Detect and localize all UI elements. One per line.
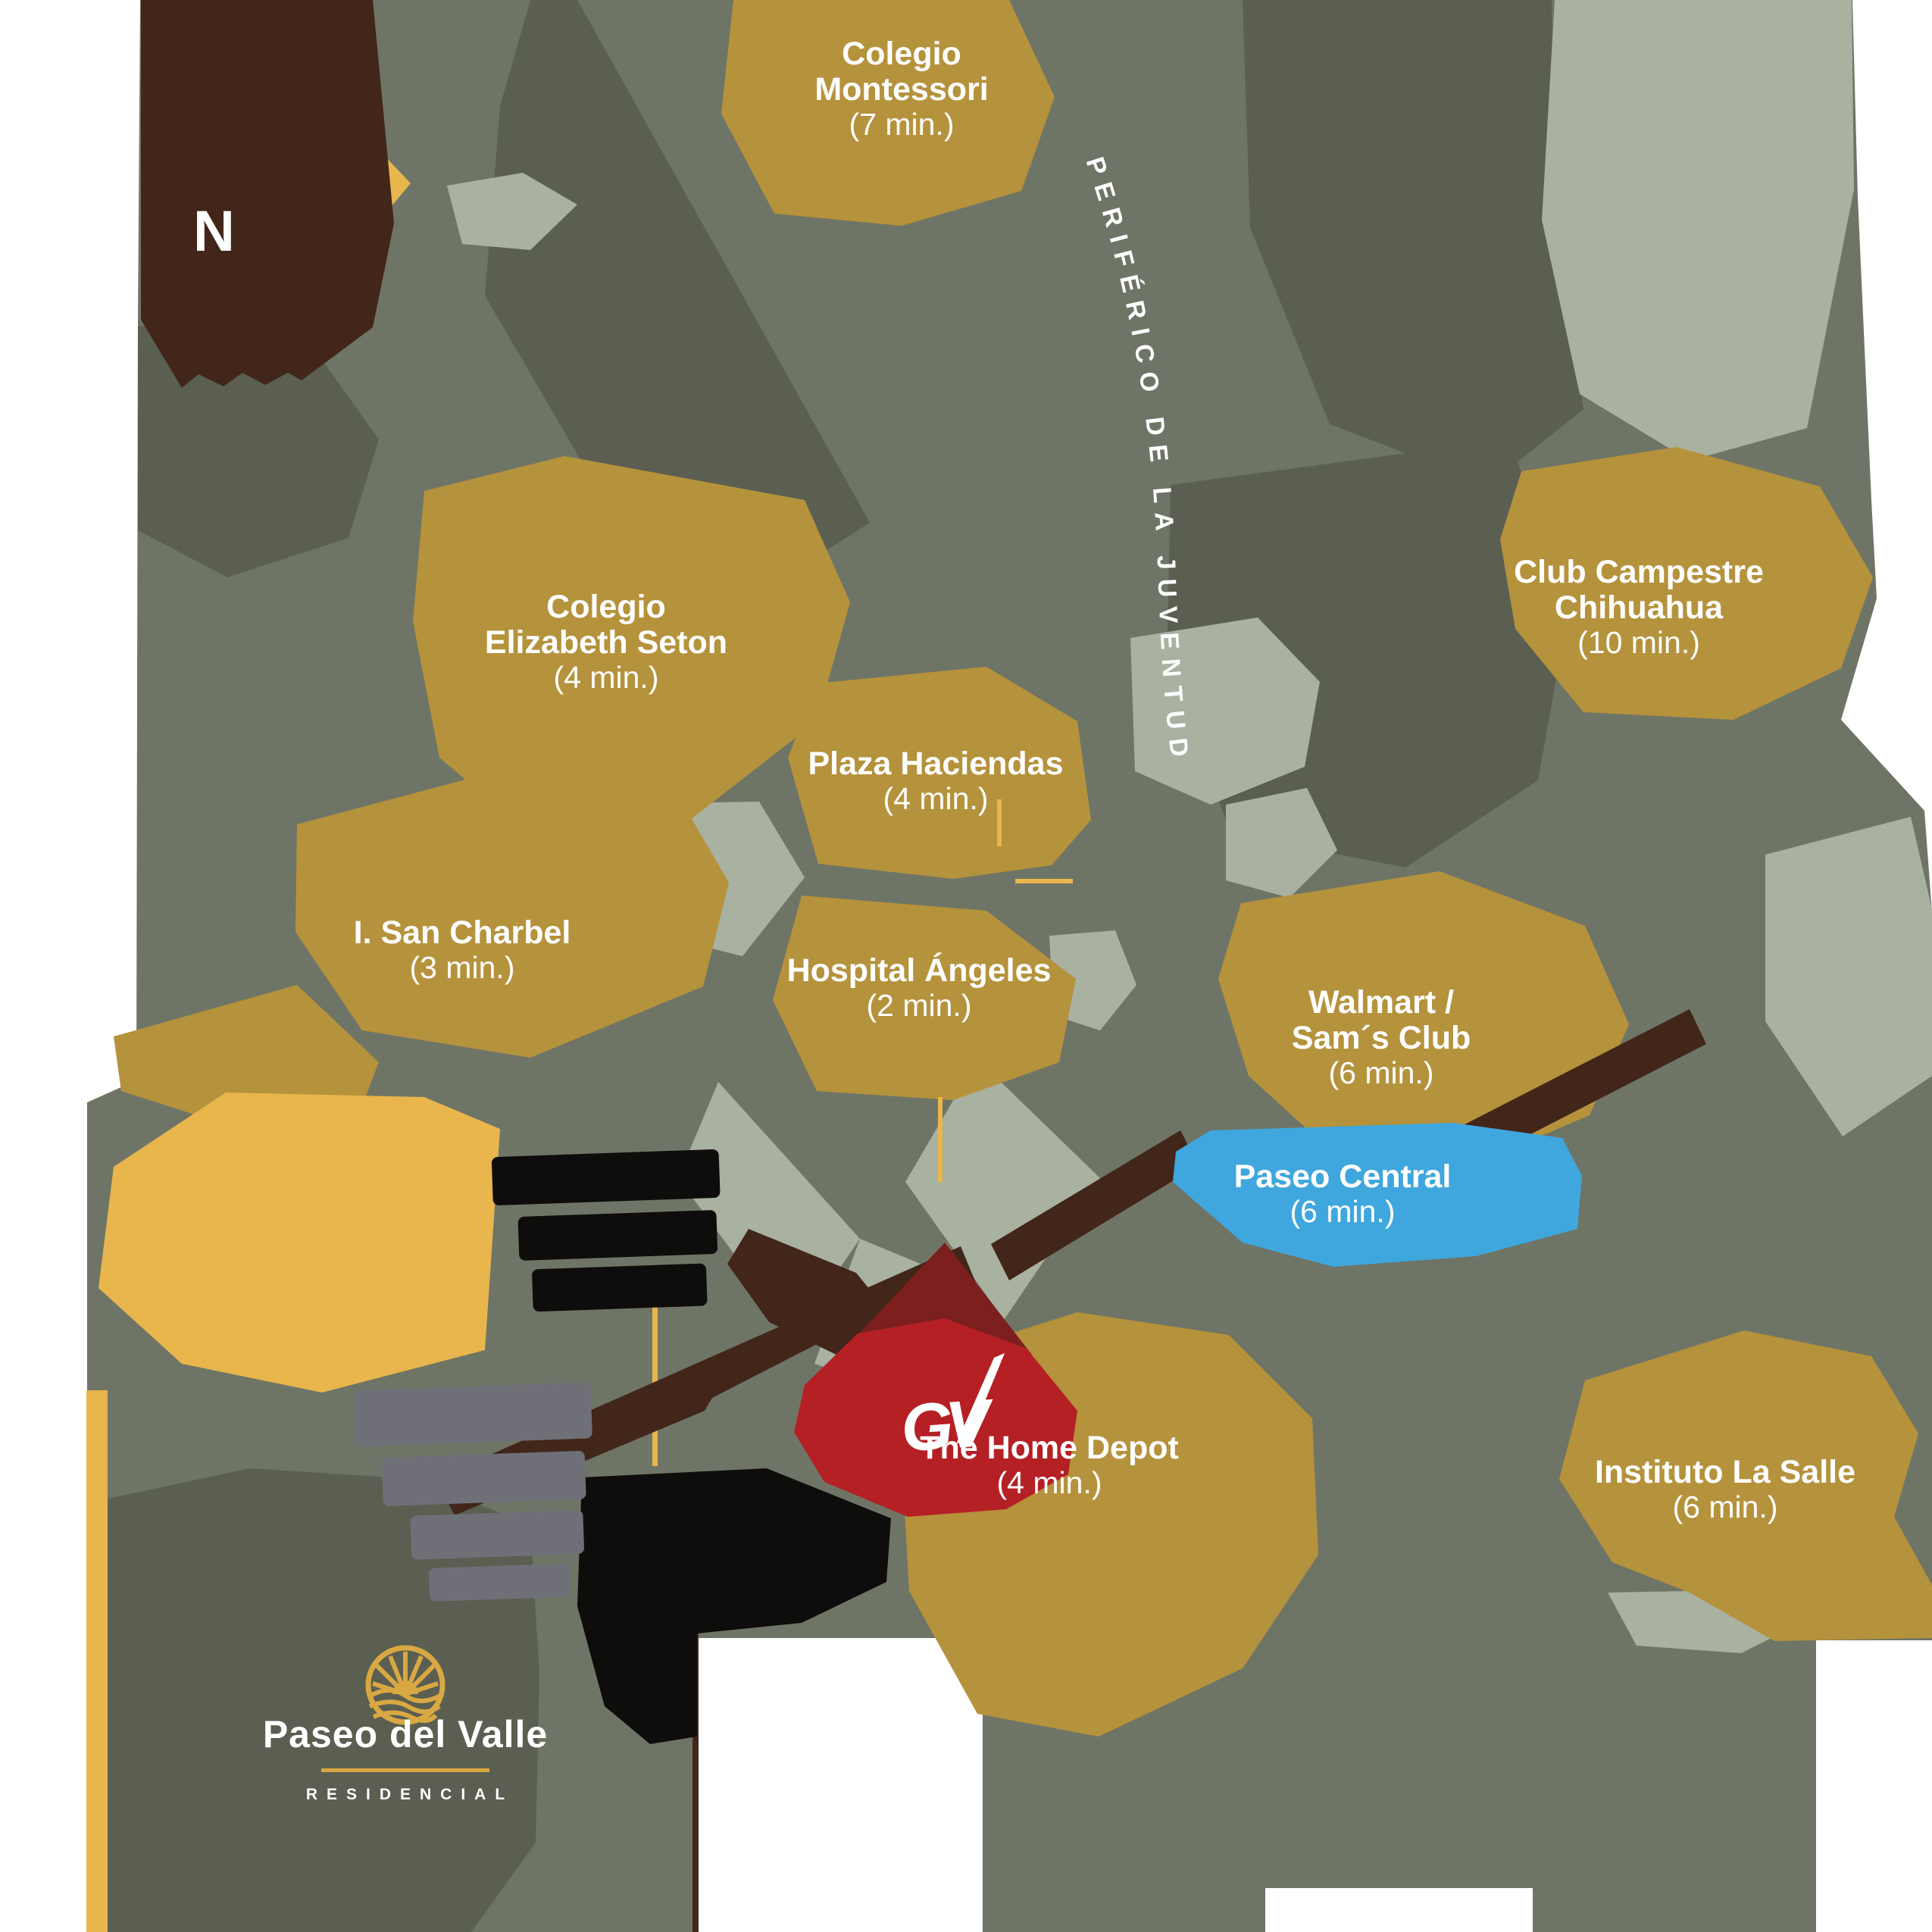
compass-north-label: N <box>193 199 235 264</box>
poi-label-hospital-angeles: Hospital Ángeles (2 min.) <box>677 953 1161 1023</box>
poi-name: Walmart / Sam´s Club <box>1139 985 1624 1056</box>
map-canvas: GV PERIFÉRICO DE LA JU <box>0 0 1932 1932</box>
brand-rule <box>321 1768 489 1772</box>
poi-name: Colegio Elizabeth Seton <box>364 589 849 661</box>
poi-name: Paseo Central <box>1100 1159 1585 1195</box>
poi-name: Club Campestre Chihuahua <box>1396 555 1881 626</box>
poi-time: (4 min.) <box>364 661 849 695</box>
poi-label-colegio-elizabeth-seton: Colegio Elizabeth Seton (4 min.) <box>364 589 849 694</box>
brand-name: Paseo del Valle <box>178 1712 633 1756</box>
poi-name: Colegio Montessori <box>659 36 1144 108</box>
poi-label-the-home-depot: The Home Depot (4 min.) <box>807 1430 1292 1500</box>
poi-name: The Home Depot <box>807 1430 1292 1466</box>
poi-label-paseo-central: Paseo Central (6 min.) <box>1100 1159 1585 1229</box>
poi-time: (6 min.) <box>1139 1056 1624 1090</box>
poi-time: (7 min.) <box>659 108 1144 142</box>
poi-time: (2 min.) <box>677 989 1161 1023</box>
compass-blob <box>141 0 394 388</box>
brand-tagline: RESIDENCIAL <box>178 1786 633 1804</box>
poi-label-i-san-charbel: I. San Charbel (3 min.) <box>220 915 705 985</box>
poi-name: I. San Charbel <box>220 915 705 951</box>
poi-time: (4 min.) <box>693 782 1178 816</box>
brand-block: Paseo del Valle RESIDENCIAL <box>178 1637 633 1804</box>
poi-time: (4 min.) <box>807 1466 1292 1500</box>
poi-time: (3 min.) <box>220 951 705 985</box>
poi-label-club-campestre: Club Campestre Chihuahua (10 min.) <box>1396 555 1881 659</box>
poi-label-plaza-haciendas: Plaza Haciendas (4 min.) <box>693 746 1178 816</box>
poi-name: Instituto La Salle <box>1483 1455 1932 1490</box>
poi-label-colegio-montessori: Colegio Montessori (7 min.) <box>659 36 1144 141</box>
poi-time: (6 min.) <box>1100 1195 1585 1229</box>
poi-label-instituto-la-salle: Instituto La Salle (6 min.) <box>1483 1455 1932 1524</box>
poi-label-walmart-sams-club: Walmart / Sam´s Club (6 min.) <box>1139 985 1624 1089</box>
poi-time: (6 min.) <box>1483 1490 1932 1524</box>
poi-name: Hospital Ángeles <box>677 953 1161 989</box>
poi-name: Plaza Haciendas <box>693 746 1178 782</box>
poi-time: (10 min.) <box>1396 626 1881 660</box>
